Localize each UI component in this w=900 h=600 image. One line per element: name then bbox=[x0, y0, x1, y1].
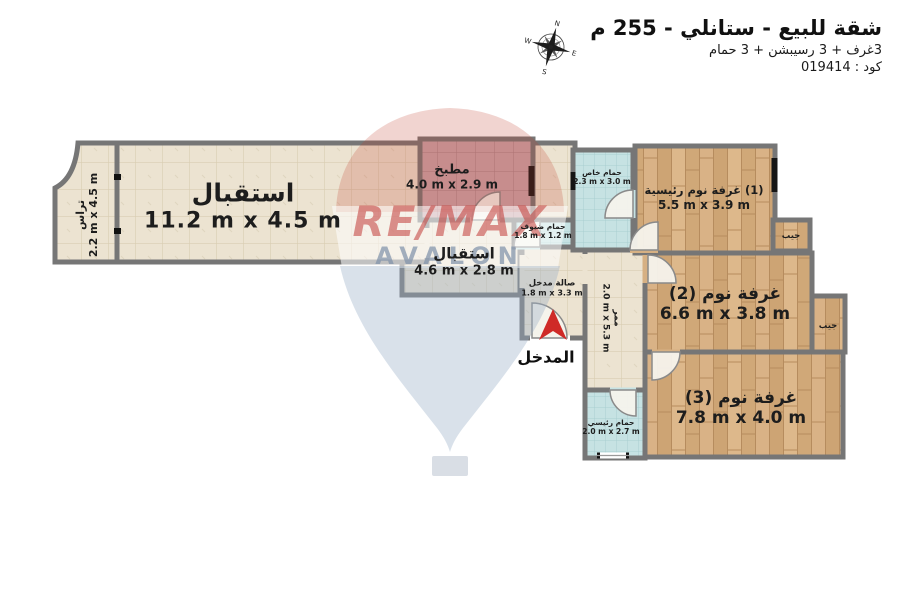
watermark-avalon-text: AVALON bbox=[375, 242, 524, 270]
compass-e-label: E bbox=[571, 49, 577, 58]
watermark-remax-text: RE/MAX bbox=[352, 197, 548, 246]
page-subtitle: 3غرف + 3 رسيبشن + 3 حمام bbox=[590, 43, 882, 58]
compass-w-label: W bbox=[523, 37, 532, 47]
remax-balloon-watermark: RE/MAX AVALON bbox=[332, 108, 568, 476]
compass-n-label: N bbox=[554, 19, 561, 28]
compass-icon: N E S W bbox=[517, 13, 584, 83]
listing-code: كود : 019414 bbox=[590, 60, 882, 75]
overlay-layer: RE/MAX AVALON N E S W bbox=[0, 0, 900, 600]
compass-s-label: S bbox=[541, 68, 548, 77]
floorplan-page: RE/MAX AVALON N E S W تراس 2.2 m x 4.5 m bbox=[0, 0, 900, 600]
header: شقة للبيع - ستانلي - 255 م 3غرف + 3 رسيب… bbox=[590, 16, 882, 75]
page-title: شقة للبيع - ستانلي - 255 م bbox=[590, 16, 882, 40]
entrance-arrow-icon bbox=[539, 309, 567, 340]
